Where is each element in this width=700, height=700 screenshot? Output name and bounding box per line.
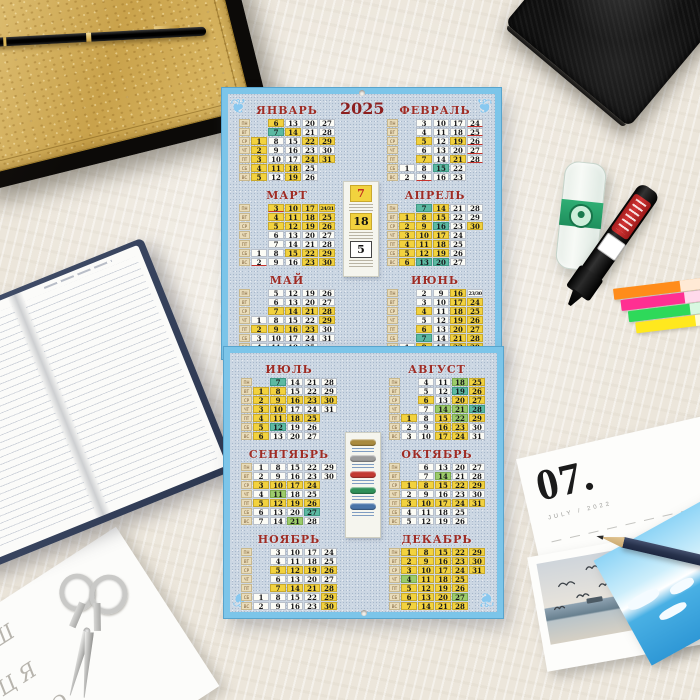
empty-cell: [253, 378, 269, 386]
month-table-january: ПН6132027ВТ7142128СР18152229ЧТ29162330ПТ…: [239, 119, 335, 181]
day-cell: 27: [319, 298, 335, 306]
day-cell: 18: [304, 557, 320, 565]
day-cell: 28: [467, 204, 483, 212]
day-cell: 10: [268, 334, 284, 342]
day-cell: 22: [304, 463, 320, 471]
day-cell: 16: [285, 146, 301, 154]
day-cell: 19: [435, 584, 451, 592]
weekday-label: ВТ: [389, 557, 400, 565]
day-cell: 21: [302, 128, 318, 136]
month-name: АВГУСТ: [408, 363, 466, 376]
day-cell: 18: [435, 575, 451, 583]
weekday-label: ПН: [239, 289, 250, 297]
day-cell: 25: [304, 414, 320, 422]
empty-cell: [319, 173, 335, 181]
day-cell: 19: [287, 423, 303, 431]
day-cell: 25: [452, 508, 468, 516]
day-cell: 3: [251, 155, 267, 163]
month-name: ФЕВРАЛЬ: [399, 104, 470, 117]
day-cell: 4: [270, 557, 286, 565]
day-cell: 24: [467, 298, 483, 306]
day-cell: 4: [416, 128, 432, 136]
day-cell: 4: [253, 414, 269, 422]
day-cell: 20: [302, 231, 318, 239]
day-cell: 5: [416, 137, 432, 145]
weekday-label: СР: [389, 396, 400, 404]
week-row: СБ6132027: [389, 593, 485, 601]
month-name: ДЕКАБРЬ: [402, 533, 473, 546]
sticky-tab-paper-end: [679, 276, 700, 292]
day-cell: 14: [433, 334, 449, 342]
day-cell: 16: [435, 490, 451, 498]
day-cell: 2: [253, 602, 269, 610]
week-row: ВТ6132027: [239, 298, 335, 306]
weekday-label: ЧТ: [239, 231, 250, 239]
day-cell: 26: [304, 423, 320, 431]
empty-cell: [321, 508, 337, 516]
week-row: ПТ5121926: [389, 584, 485, 592]
week-row: ПН6132027: [239, 119, 335, 127]
week-row: ПТ7142128: [239, 240, 335, 248]
day-cell: 12: [435, 387, 451, 395]
week-row: ПТ4111825: [387, 240, 483, 248]
empty-cell: [399, 137, 415, 145]
empty-cell: [469, 575, 485, 583]
pen-clip: [154, 25, 180, 29]
empty-cell: [469, 517, 485, 525]
week-row: ПН7142128: [387, 204, 483, 212]
day-cell: 5: [416, 316, 432, 324]
day-cell: 22: [302, 249, 318, 257]
empty-cell: [401, 472, 417, 480]
day-cell: 14: [287, 378, 303, 386]
day-cell: 6: [418, 396, 434, 404]
day-cell: 28: [469, 472, 485, 480]
capsule-caption-lines: [352, 464, 374, 468]
day-cell: 5: [253, 423, 269, 431]
empty-cell: [253, 566, 269, 574]
day-cell: 6: [416, 325, 432, 333]
day-cell: 17: [287, 481, 303, 489]
day-cell: 28: [319, 128, 335, 136]
week-row: СР310172431: [389, 566, 485, 574]
week-row: ВС6132027: [241, 432, 337, 440]
weekday-label: ПТ: [241, 584, 252, 592]
day-cell: 26: [321, 566, 337, 574]
weekday-label: ПН: [389, 548, 400, 556]
day-cell: 18: [452, 378, 468, 386]
day-cell: 7: [418, 472, 434, 480]
day-cell: 21: [304, 584, 320, 592]
day-cell: 5: [401, 517, 417, 525]
day-cell: 30: [319, 258, 335, 266]
day-cell: 24: [450, 231, 466, 239]
weekday-label: СБ: [239, 249, 250, 257]
day-cell: 21: [452, 472, 468, 480]
day-cell: 23: [304, 472, 320, 480]
week-row: ВТ3101724: [387, 298, 483, 306]
day-cell: 14: [418, 602, 434, 610]
day-cell: 29: [321, 463, 337, 471]
day-cell: 14: [435, 472, 451, 480]
weekday-label: ВТ: [239, 213, 250, 221]
calendar-sheet-top: ❦ ❦ ЯНВАРЬ 2025 ФЕВРАЛЬ ПН6132027ВТ71421…: [222, 88, 501, 359]
weekday-label: ЧТ: [239, 146, 250, 154]
weekday-label: ЧТ: [387, 316, 398, 324]
empty-cell: [399, 289, 415, 297]
day-cell: 2: [251, 325, 267, 333]
week-row: ПН291623/30: [387, 289, 483, 297]
day-cell: 29: [469, 481, 485, 489]
day-cell: 19: [452, 387, 468, 395]
day-cell: 31: [469, 566, 485, 574]
week-row: СР3101724: [241, 481, 337, 489]
month-table-december: ПН18152229ВТ29162330СР310172431ЧТ4111825…: [389, 548, 485, 610]
scissors-handle-ring: [84, 569, 133, 619]
week-row: СБ4111825: [389, 508, 485, 516]
day-cell: 11: [416, 240, 432, 248]
day-cell: 2: [399, 173, 415, 181]
weekday-label: СР: [389, 566, 400, 574]
day-cell: 1: [401, 548, 417, 556]
empty-cell: [253, 548, 269, 556]
day-cell: 30: [319, 146, 335, 154]
day-cell: 8: [416, 164, 432, 172]
day-cell: 3: [401, 566, 417, 574]
day-cell: 3: [401, 432, 417, 440]
day-cell: 23: [452, 423, 468, 431]
weekday-label: ВТ: [241, 557, 252, 565]
day-cell: 4: [401, 575, 417, 583]
weekday-label: СБ: [241, 593, 252, 601]
day-cell: 1: [251, 249, 267, 257]
weekday-label: СБ: [387, 249, 398, 257]
date-card-number: 07.: [531, 449, 599, 512]
weekday-label: СР: [239, 137, 250, 145]
day-cell: 19: [450, 137, 466, 145]
day-cell: 7: [253, 517, 269, 525]
day-cell: 13: [433, 146, 449, 154]
day-cell: 16: [287, 396, 303, 404]
day-cell: 7: [416, 155, 432, 163]
empty-cell: [251, 213, 267, 221]
day-cell: 19: [435, 517, 451, 525]
week-row: ПТ6132027: [387, 325, 483, 333]
day-cell: 8: [418, 481, 434, 489]
day-cell: 8: [270, 463, 286, 471]
week-row: ВС7142128: [241, 517, 337, 525]
weekday-label: ПТ: [387, 155, 398, 163]
weekday-label: ПТ: [387, 325, 398, 333]
day-cell: 2: [399, 222, 415, 230]
day-cell: 7: [270, 378, 286, 386]
empty-cell: [469, 508, 485, 516]
empty-cell: [401, 387, 417, 395]
day-cell: 10: [270, 481, 286, 489]
day-cell: 1: [253, 593, 269, 601]
title-band: ИЮЛЬ АВГУСТ: [236, 358, 491, 377]
day-cell: 28: [467, 334, 483, 342]
day-cell: 28: [467, 155, 483, 163]
week-row: ВС29162330: [241, 602, 337, 610]
day-cell: 4: [418, 378, 434, 386]
month-table-november: ПН3101724ВТ4111825СР5121926ЧТ6132027ПТ71…: [241, 548, 337, 610]
month-table-march: ПН3101724/31ВТ4111825СР5121926ЧТ6132027П…: [239, 204, 335, 266]
day-cell: 18: [287, 414, 303, 422]
weekday-label: ЧТ: [389, 575, 400, 583]
day-cell: 17: [435, 432, 451, 440]
weekday-label: ВС: [389, 517, 400, 525]
week-row: ПН18152229: [241, 463, 337, 471]
legend-capsule: [350, 439, 376, 446]
day-cell: 20: [287, 508, 303, 516]
day-cell: 28: [321, 378, 337, 386]
day-cell: 21: [302, 240, 318, 248]
day-cell: 14: [433, 155, 449, 163]
empty-cell: [321, 414, 337, 422]
empty-cell: [399, 325, 415, 333]
day-cell: 23: [302, 325, 318, 333]
empty-cell: [467, 258, 483, 266]
empty-cell: [321, 432, 337, 440]
empty-cell: [319, 164, 335, 172]
empty-cell: [401, 378, 417, 386]
empty-cell: [251, 298, 267, 306]
day-cell: 15: [287, 593, 303, 601]
empty-cell: [399, 204, 415, 212]
day-cell: 13: [270, 508, 286, 516]
day-cell: 14: [285, 128, 301, 136]
empty-cell: [251, 289, 267, 297]
week-row: ПТ4111825: [241, 414, 337, 422]
day-cell: 28: [452, 602, 468, 610]
day-cell: 17: [450, 298, 466, 306]
day-cell: 16: [285, 325, 301, 333]
day-cell: 5: [253, 499, 269, 507]
day-cell: 17: [285, 334, 301, 342]
day-cell: 10: [418, 566, 434, 574]
day-cell: 16: [435, 423, 451, 431]
empty-cell: [399, 307, 415, 315]
weekday-label: ПН: [387, 289, 398, 297]
day-cell: 24: [304, 481, 320, 489]
weekday-label: ВС: [387, 258, 398, 266]
day-cell: 24: [321, 548, 337, 556]
ice-floe: [668, 575, 696, 596]
weekday-label: ЧТ: [387, 146, 398, 154]
month-name: ИЮЛЬ: [265, 363, 312, 376]
day-cell: 4: [268, 213, 284, 221]
day-cell: 22: [302, 137, 318, 145]
month-name: МАЙ: [270, 274, 305, 287]
day-cell: 17: [302, 204, 318, 212]
empty-cell: [251, 240, 267, 248]
day-cell: 3: [401, 499, 417, 507]
day-cell: 28: [319, 307, 335, 315]
day-cell: 2: [401, 490, 417, 498]
day-cell: 13: [416, 258, 432, 266]
day-cell: 29: [319, 137, 335, 145]
day-cell: 19: [433, 249, 449, 257]
day-cell: 27: [467, 325, 483, 333]
capsule-caption-lines: [352, 480, 374, 484]
week-row: СБ6132027: [241, 508, 337, 516]
weekday-label: ПН: [241, 463, 252, 471]
day-cell: 18: [287, 490, 303, 498]
week-row: ПН4111825: [389, 378, 485, 386]
day-cell: 10: [418, 499, 434, 507]
empty-cell: [401, 463, 417, 471]
day-cell: 27: [450, 258, 466, 266]
day-cell: 11: [418, 508, 434, 516]
week-row: ЧТ29162330: [389, 490, 485, 498]
day-cell: 31: [319, 334, 335, 342]
day-cell: 9: [268, 258, 284, 266]
legend-capsule: [350, 455, 376, 462]
weekday-label: ВС: [389, 432, 400, 440]
week-row: СР18152229: [239, 137, 335, 145]
month-name: СЕНТЯБРЬ: [249, 448, 329, 461]
color-capsule-legend: [345, 432, 381, 538]
empty-cell: [253, 557, 269, 565]
day-cell: 10: [287, 548, 303, 556]
month-name: ИЮНЬ: [411, 274, 459, 287]
day-cell: 30: [469, 423, 485, 431]
weekday-label: СР: [387, 137, 398, 145]
day-cell: 3: [253, 405, 269, 413]
day-cell: 12: [285, 222, 301, 230]
day-cell: 22: [452, 548, 468, 556]
weekday-label: СР: [241, 396, 252, 404]
day-cell: 21: [287, 517, 303, 525]
day-cell: 20: [452, 396, 468, 404]
empty-cell: [251, 128, 267, 136]
empty-cell: [251, 307, 267, 315]
capsule-caption-lines: [352, 512, 374, 516]
day-cell: 3: [268, 204, 284, 212]
day-cell: 8: [270, 387, 286, 395]
day-cell: 17: [433, 231, 449, 239]
day-cell: 7: [416, 204, 432, 212]
day-cell: 3: [416, 119, 432, 127]
week-row: СР5121926: [387, 137, 483, 145]
empty-cell: [399, 119, 415, 127]
day-cell: 6: [253, 432, 269, 440]
day-cell: 26: [304, 499, 320, 507]
day-cell: 20: [304, 575, 320, 583]
day-cell: 24: [302, 334, 318, 342]
month-name: ОКТЯБРЬ: [401, 448, 472, 461]
day-cell: 13: [287, 575, 303, 583]
day-cell: 25: [467, 307, 483, 315]
day-cell: 5: [268, 289, 284, 297]
day-cell: 5: [401, 584, 417, 592]
day-cell: 28: [469, 405, 485, 413]
weekday-label: ЧТ: [241, 490, 252, 498]
weekday-label: ПТ: [389, 414, 400, 422]
day-cell: 16: [287, 602, 303, 610]
weekday-label: СР: [387, 307, 398, 315]
day-cell: 6: [268, 298, 284, 306]
week-row: ВТ4111825: [387, 128, 483, 136]
week-row: ВС7142128: [389, 602, 485, 610]
week-row: СР18152229: [389, 481, 485, 489]
weekday-label: СБ: [239, 334, 250, 342]
day-cell: 4: [416, 307, 432, 315]
month-tables-band: ПН3101724ВТ4111825СР5121926ЧТ6132027ПТ71…: [236, 548, 491, 610]
week-row: ВТ7142128: [239, 128, 335, 136]
day-cell: 4: [253, 490, 269, 498]
day-cell: 26: [452, 584, 468, 592]
empty-cell: [251, 119, 267, 127]
week-row: СБ4111825: [239, 164, 335, 172]
day-cell: 26: [469, 387, 485, 395]
month-tables-band: ПН7142128ВТ18152229СР29162330ЧТ310172431…: [236, 378, 491, 440]
weekday-label: ПТ: [241, 414, 252, 422]
day-cell: 25: [450, 240, 466, 248]
day-cell: 10: [433, 298, 449, 306]
day-cell: 27: [469, 396, 485, 404]
day-cell: 22: [450, 213, 466, 221]
weekday-label: ЧТ: [239, 316, 250, 324]
day-cell: 12: [285, 289, 301, 297]
day-cell: 7: [268, 128, 284, 136]
week-row: СБ18152229: [241, 593, 337, 601]
day-cell: 29: [469, 414, 485, 422]
day-cell: 13: [435, 396, 451, 404]
week-row: ПТ29162330: [239, 325, 335, 333]
day-cell: 22: [304, 593, 320, 601]
empty-cell: [321, 481, 337, 489]
weekday-label: ПН: [241, 378, 252, 386]
day-cell: 6: [253, 508, 269, 516]
week-row: ПН7142128: [241, 378, 337, 386]
pencil-lead: [596, 534, 604, 540]
day-cell: 15: [287, 463, 303, 471]
week-row: ЧТ4111825: [389, 575, 485, 583]
day-cell: 11: [418, 575, 434, 583]
capsule-caption-lines: [352, 448, 374, 452]
empty-cell: [467, 240, 483, 248]
day-cell: 27: [469, 463, 485, 471]
day-cell: 23: [302, 258, 318, 266]
day-cell: 8: [268, 137, 284, 145]
pen-gold-band: [86, 33, 91, 42]
day-cell: 1: [251, 316, 267, 324]
day-cell: 15: [285, 249, 301, 257]
day-cell: 6: [270, 575, 286, 583]
day-cell: 3: [416, 298, 432, 306]
day-cell: 23: [452, 490, 468, 498]
month-name: АПРЕЛЬ: [405, 189, 466, 202]
day-cell: 28: [304, 517, 320, 525]
week-row: ВТ29162330: [241, 472, 337, 480]
empty-cell: [469, 593, 485, 601]
day-cell: 11: [433, 307, 449, 315]
day-cell: 24: [304, 405, 320, 413]
pen-gold-ring: [3, 37, 6, 46]
week-row: СБ181522: [387, 164, 483, 172]
week-row: ПТ310172431: [389, 499, 485, 507]
day-cell: 27: [452, 593, 468, 601]
day-cell: 30: [469, 557, 485, 565]
week-row: СБ5121926: [241, 423, 337, 431]
day-cell: 4: [251, 164, 267, 172]
weekday-label: ПТ: [239, 325, 250, 333]
day-cell: 25: [321, 557, 337, 565]
weekday-label: ЧТ: [241, 405, 252, 413]
weekday-label: ВС: [239, 173, 250, 181]
